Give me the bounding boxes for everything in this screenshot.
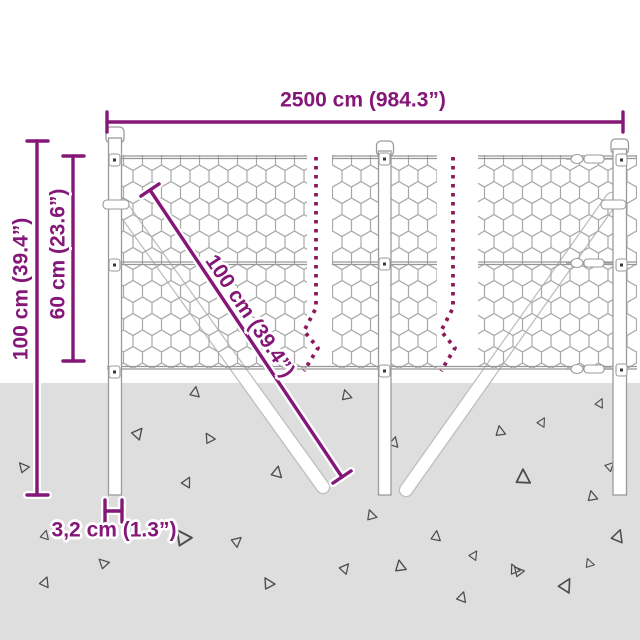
post-right — [611, 139, 629, 495]
post-left — [106, 127, 124, 495]
dim-total-width — [107, 112, 623, 132]
post-middle — [377, 141, 394, 495]
fence-dimension-diagram: 2500 cm (984.3”) 100 cm (39.4”) 60 cm (2… — [0, 0, 640, 640]
label-total-height: 100 cm (39.4”) — [11, 218, 32, 360]
label-post-width: 3,2 cm (1.3”) — [52, 520, 177, 541]
break-line-right — [441, 157, 455, 371]
label-total-width: 2500 cm (984.3”) — [280, 90, 446, 111]
label-mesh-height: 60 cm (23.6”) — [48, 189, 69, 320]
